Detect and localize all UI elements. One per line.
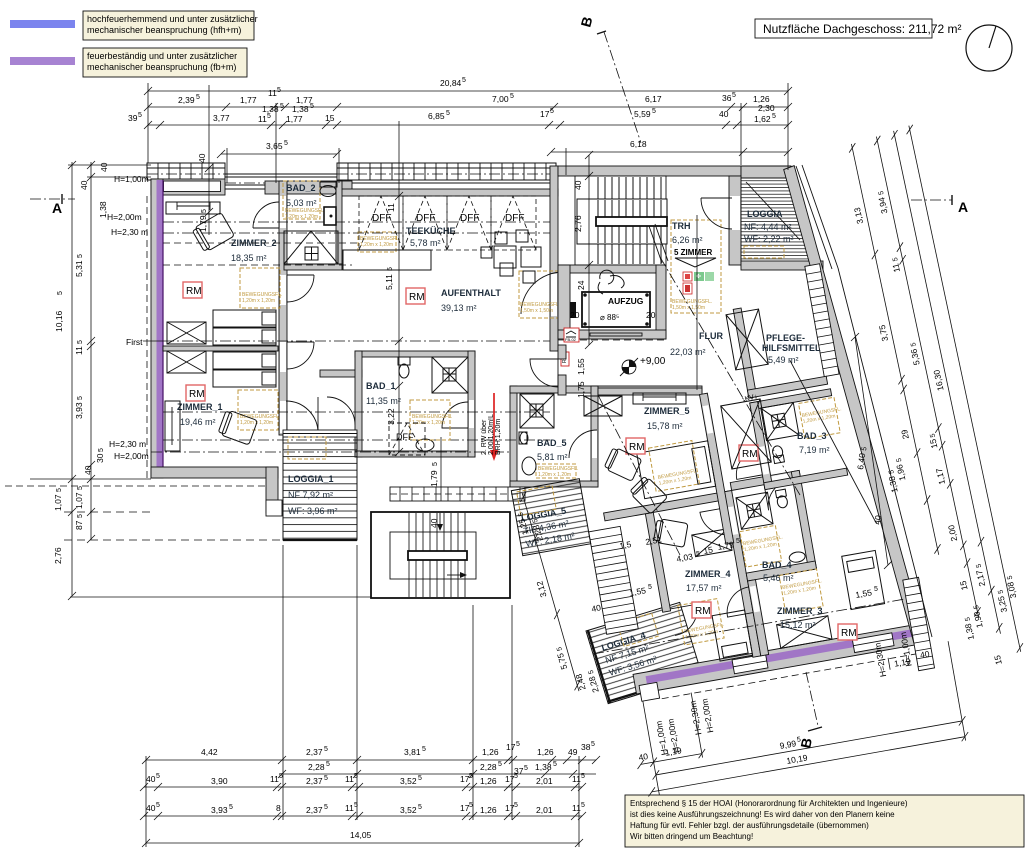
svg-text:11: 11	[345, 803, 354, 813]
svg-text:1,5: 1,5	[619, 539, 633, 551]
svg-text:19,46 m²: 19,46 m²	[180, 417, 216, 427]
svg-text:10,16: 10,16	[54, 310, 64, 332]
svg-text:A: A	[958, 199, 968, 215]
svg-text:ist dies keine Ausführungszeic: ist dies keine Ausführungszeichnung! Es …	[630, 810, 895, 819]
svg-text:5: 5	[201, 209, 208, 213]
svg-text:H=2,30 m: H=2,30 m	[111, 227, 148, 237]
svg-text:5: 5	[280, 103, 284, 110]
svg-text:2,28: 2,28	[308, 762, 325, 772]
svg-text:7,19 m²: 7,19 m²	[799, 445, 830, 455]
svg-text:5: 5	[77, 254, 84, 258]
svg-text:5: 5	[736, 538, 740, 545]
svg-text:5: 5	[284, 140, 288, 147]
svg-text:1,26: 1,26	[537, 747, 554, 757]
svg-text:11,35 m²: 11,35 m²	[366, 396, 401, 406]
svg-text:2,01: 2,01	[536, 776, 553, 786]
svg-text:5: 5	[267, 113, 271, 120]
svg-text:11: 11	[258, 114, 267, 124]
svg-text:5,11: 5,11	[384, 274, 394, 290]
svg-text:5: 5	[732, 92, 736, 99]
svg-text:RM: RM	[841, 628, 857, 639]
svg-text:A: A	[52, 200, 62, 216]
svg-text:18,35 m²: 18,35 m²	[231, 253, 267, 263]
svg-text:1,62: 1,62	[754, 114, 771, 124]
svg-text:1,20m x 1,20m: 1,20m x 1,20m	[285, 214, 318, 220]
svg-text:7,00: 7,00	[492, 94, 509, 104]
svg-text:5: 5	[469, 773, 473, 780]
svg-text:40: 40	[146, 774, 156, 784]
svg-text:2,37: 2,37	[306, 805, 323, 815]
svg-text:4,42: 4,42	[201, 747, 218, 757]
svg-text:15,78 m²: 15,78 m²	[647, 421, 683, 431]
svg-text:3,52: 3,52	[400, 805, 417, 815]
svg-text:5: 5	[324, 775, 328, 782]
svg-text:17: 17	[506, 742, 516, 752]
svg-text:5: 5	[652, 108, 656, 115]
svg-text:22,03 m²: 22,03 m²	[670, 347, 706, 357]
svg-text:ZIMMER_5: ZIMMER_5	[644, 406, 690, 416]
svg-text:AUFZUG: AUFZUG	[608, 296, 644, 306]
svg-text:30: 30	[95, 453, 105, 463]
svg-text:5: 5	[279, 773, 283, 780]
svg-text:5: 5	[516, 741, 520, 748]
svg-text:5: 5	[156, 773, 160, 780]
svg-text:5: 5	[277, 87, 281, 94]
svg-text:5: 5	[57, 291, 64, 295]
svg-text:RM: RM	[189, 389, 205, 400]
svg-text:+9,00: +9,00	[640, 356, 666, 367]
svg-text:5: 5	[77, 340, 84, 344]
svg-text:1,75: 1,75	[576, 381, 586, 398]
svg-text:5: 5	[772, 113, 776, 120]
svg-text:40: 40	[83, 465, 93, 475]
svg-text:5: 5	[310, 103, 314, 110]
svg-text:5,49 m²: 5,49 m²	[768, 355, 799, 365]
svg-text:H=1,00m: H=1,00m	[114, 174, 149, 184]
svg-text:5: 5	[422, 746, 426, 753]
svg-text:5,59: 5,59	[634, 109, 651, 119]
svg-text:5: 5	[77, 486, 84, 490]
svg-text:1,20m x 1,20m: 1,20m x 1,20m	[538, 472, 571, 478]
svg-text:40: 40	[197, 153, 207, 163]
svg-text:RM: RM	[742, 449, 758, 460]
svg-text:5: 5	[432, 462, 439, 466]
svg-text:RM: RM	[409, 292, 425, 303]
svg-text:BAD_3: BAD_3	[797, 431, 827, 441]
svg-text:2,39: 2,39	[178, 95, 195, 105]
svg-text:5: 5	[77, 514, 84, 518]
svg-text:5: 5	[138, 112, 142, 119]
svg-text:Wir bitten dringend um Beachtu: Wir bitten dringend um Beachtung!	[630, 832, 753, 841]
svg-text:5: 5	[387, 267, 394, 271]
svg-text:49: 49	[568, 747, 578, 757]
svg-text:TRH: TRH	[672, 221, 691, 231]
svg-text:40: 40	[79, 180, 89, 190]
svg-text:LOGGIA_1: LOGGIA_1	[288, 474, 334, 484]
svg-text:11: 11	[572, 774, 581, 784]
svg-text:5: 5	[446, 110, 450, 117]
svg-text:8: 8	[276, 803, 281, 813]
svg-text:5: 5	[56, 488, 63, 492]
svg-text:RM: RM	[186, 286, 202, 297]
svg-text:11: 11	[268, 88, 277, 98]
svg-text:WF: 2,22 m²: WF: 2,22 m²	[744, 234, 794, 244]
svg-text:5: 5	[229, 804, 233, 811]
svg-text:2,28: 2,28	[480, 762, 497, 772]
svg-text:5,81 m²: 5,81 m²	[537, 452, 568, 462]
svg-text:NF 7,92 m²: NF 7,92 m²	[288, 490, 333, 500]
svg-text:5,31: 5,31	[74, 260, 84, 277]
svg-text:2,37: 2,37	[306, 747, 323, 757]
svg-text:FB-02: FB-02	[565, 337, 577, 342]
svg-text:2. RW über: 2. RW über	[481, 419, 488, 455]
svg-text:11: 11	[270, 774, 279, 784]
svg-text:40: 40	[573, 180, 583, 190]
svg-text:2,00/1,20m!L: 2,00/1,20m!L	[488, 414, 495, 455]
svg-text:3,65: 3,65	[266, 141, 283, 151]
svg-text:5: 5	[418, 804, 422, 811]
svg-text:2,76: 2,76	[53, 547, 63, 564]
svg-text:1,55: 1,55	[576, 358, 586, 375]
svg-text:1,77: 1,77	[286, 114, 303, 124]
svg-text:1,38: 1,38	[535, 762, 552, 772]
svg-text:ZIMMER_1: ZIMMER_1	[177, 402, 223, 412]
svg-text:1,20m x 1,20m: 1,20m x 1,20m	[242, 298, 275, 304]
svg-text:39: 39	[128, 113, 138, 123]
svg-text:BAD_1: BAD_1	[366, 381, 396, 391]
svg-text:1,26: 1,26	[482, 747, 499, 757]
svg-text:15,12 m²: 15,12 m²	[780, 620, 816, 630]
svg-text:1,38: 1,38	[292, 104, 309, 114]
svg-text:20: 20	[570, 310, 580, 320]
svg-text:5: 5	[648, 584, 652, 591]
svg-text:6,26 m²: 6,26 m²	[672, 235, 703, 245]
svg-text:5: 5	[581, 773, 585, 780]
svg-text:11: 11	[345, 774, 354, 784]
svg-text:40: 40	[591, 602, 602, 614]
svg-text:5: 5	[553, 761, 557, 768]
svg-text:24: 24	[576, 280, 586, 290]
svg-text:39,13 m²: 39,13 m²	[441, 303, 477, 313]
svg-text:5: 5	[462, 77, 466, 84]
svg-text:40: 40	[872, 514, 883, 525]
svg-text:5: 5	[324, 746, 328, 753]
svg-text:HILFSMITTEL: HILFSMITTEL	[762, 343, 821, 353]
svg-text:5: 5	[874, 586, 878, 593]
svg-text:2,76: 2,76	[573, 215, 583, 232]
svg-text:5: 5	[469, 802, 473, 809]
svg-text:3,90: 3,90	[211, 776, 228, 786]
svg-text:3,81: 3,81	[404, 747, 421, 757]
svg-text:2,30: 2,30	[758, 103, 775, 113]
svg-text:14,05: 14,05	[350, 830, 372, 840]
svg-text:First: First	[126, 337, 143, 347]
svg-text:87: 87	[74, 520, 84, 530]
svg-text:AUFENTHALT: AUFENTHALT	[441, 288, 501, 298]
svg-text:1,07: 1,07	[53, 494, 63, 511]
svg-text:5: 5	[524, 765, 528, 772]
svg-text:RM: RM	[695, 606, 711, 617]
svg-text:36: 36	[722, 93, 732, 103]
svg-text:hochfeuerhemmend und unter zus: hochfeuerhemmend und unter zusätzlicher	[87, 14, 258, 24]
svg-text:6,18: 6,18	[630, 139, 647, 149]
svg-text:1,26: 1,26	[480, 805, 497, 815]
svg-text:40: 40	[146, 803, 156, 813]
svg-text:BAD_2: BAD_2	[286, 183, 316, 193]
svg-text:11: 11	[572, 803, 581, 813]
svg-text:WF: 3,96 m²: WF: 3,96 m²	[288, 506, 338, 516]
svg-text:20,84: 20,84	[440, 78, 462, 88]
svg-text:feuerbeständig und unter zusät: feuerbeständig und unter zusätzlicher	[87, 51, 237, 61]
svg-text:15: 15	[703, 544, 714, 556]
svg-text:6,17: 6,17	[645, 94, 662, 104]
svg-text:17,57 m²: 17,57 m²	[686, 583, 722, 593]
svg-text:H=2,00m: H=2,00m	[114, 451, 149, 461]
svg-text:15: 15	[325, 113, 335, 123]
svg-text:Entsprechend § 15 der HOAI (Ho: Entsprechend § 15 der HOAI (Honorarordnu…	[630, 799, 908, 808]
svg-text:6,85: 6,85	[428, 111, 445, 121]
svg-text:1,07: 1,07	[74, 492, 84, 509]
svg-text:mechanischer beanspruchung (fb: mechanischer beanspruchung (fb+m)	[87, 62, 236, 72]
svg-text:5: 5	[510, 93, 514, 100]
svg-text:5: 5	[550, 108, 554, 115]
svg-text:5: 5	[498, 761, 502, 768]
svg-text:5: 5	[98, 448, 105, 452]
svg-text:5 ZIMMER: 5 ZIMMER	[674, 248, 712, 257]
svg-text:3,93: 3,93	[211, 805, 228, 815]
svg-text:1,79: 1,79	[429, 470, 439, 487]
svg-text:ZIMMER_4: ZIMMER_4	[685, 569, 731, 579]
svg-text:1,79: 1,79	[198, 215, 208, 232]
svg-text:BAD_5: BAD_5	[537, 438, 567, 448]
svg-text:20: 20	[646, 310, 656, 320]
svg-text:ZIMMER_3: ZIMMER_3	[777, 606, 823, 616]
svg-text:11: 11	[74, 346, 84, 355]
svg-text:1,20m x 1,20m: 1,20m x 1,20m	[360, 242, 393, 248]
svg-text:mechanischer beanspruchung (hf: mechanischer beanspruchung (hfh+m)	[87, 25, 241, 35]
svg-text:BRH:1,20m: BRH:1,20m	[495, 419, 502, 455]
svg-text:H=2,30 m: H=2,30 m	[109, 439, 146, 449]
svg-text:40: 40	[99, 162, 109, 172]
svg-text:40: 40	[919, 649, 930, 661]
svg-text:PFLEGE-: PFLEGE-	[766, 333, 805, 343]
svg-text:2,37: 2,37	[306, 776, 323, 786]
svg-text:5: 5	[196, 94, 200, 101]
svg-text:5: 5	[514, 802, 518, 809]
svg-text:H=2,00m: H=2,00m	[107, 212, 142, 222]
svg-text:5: 5	[324, 804, 328, 811]
svg-text:1,77: 1,77	[240, 95, 257, 105]
svg-text:3,22: 3,22	[386, 408, 396, 425]
svg-text:40: 40	[638, 751, 649, 763]
svg-text:NF: 4,44 m²: NF: 4,44 m²	[744, 222, 792, 232]
svg-text:5: 5	[591, 741, 595, 748]
svg-text:5: 5	[156, 802, 160, 809]
svg-text:TEEKÜCHE: TEEKÜCHE	[406, 226, 456, 236]
svg-text:3,93: 3,93	[74, 402, 84, 419]
svg-text:1,50m x 1,50m: 1,50m x 1,50m	[520, 308, 553, 314]
svg-text:5,46 m²: 5,46 m²	[763, 573, 794, 583]
svg-text:2,01: 2,01	[536, 805, 553, 815]
svg-text:5,78 m²: 5,78 m²	[410, 238, 441, 248]
svg-text:3,52: 3,52	[400, 776, 417, 786]
svg-text:5: 5	[581, 802, 585, 809]
svg-text:3,77: 3,77	[213, 113, 230, 123]
svg-text:11: 11	[386, 203, 396, 212]
svg-text:5: 5	[77, 396, 84, 400]
svg-text:5,03 m²: 5,03 m²	[286, 198, 317, 208]
svg-text:Nutzfläche Dachgeschoss: 211,7: Nutzfläche Dachgeschoss: 211,72 m²	[763, 22, 962, 36]
svg-text:1,50m x 1,50m: 1,50m x 1,50m	[672, 305, 705, 311]
svg-text:40: 40	[429, 518, 439, 528]
svg-text:1,26: 1,26	[480, 776, 497, 786]
svg-text:FLUR: FLUR	[699, 331, 723, 341]
svg-text:⌀ 88⁵: ⌀ 88⁵	[600, 313, 619, 322]
svg-text:17: 17	[540, 109, 550, 119]
svg-text:5: 5	[418, 775, 422, 782]
svg-text:5: 5	[514, 773, 518, 780]
svg-text:RM: RM	[629, 442, 645, 453]
svg-text:5: 5	[696, 551, 700, 558]
svg-text:38: 38	[581, 742, 591, 752]
svg-text:5: 5	[326, 761, 330, 768]
svg-text:Haftung für evtl. Fehler bzgl.: Haftung für evtl. Fehler bzgl. der ausfü…	[630, 821, 869, 830]
svg-text:LOGGIA: LOGGIA	[747, 209, 783, 219]
svg-text:BAD_4: BAD_4	[762, 560, 792, 570]
svg-text:40: 40	[719, 109, 729, 119]
